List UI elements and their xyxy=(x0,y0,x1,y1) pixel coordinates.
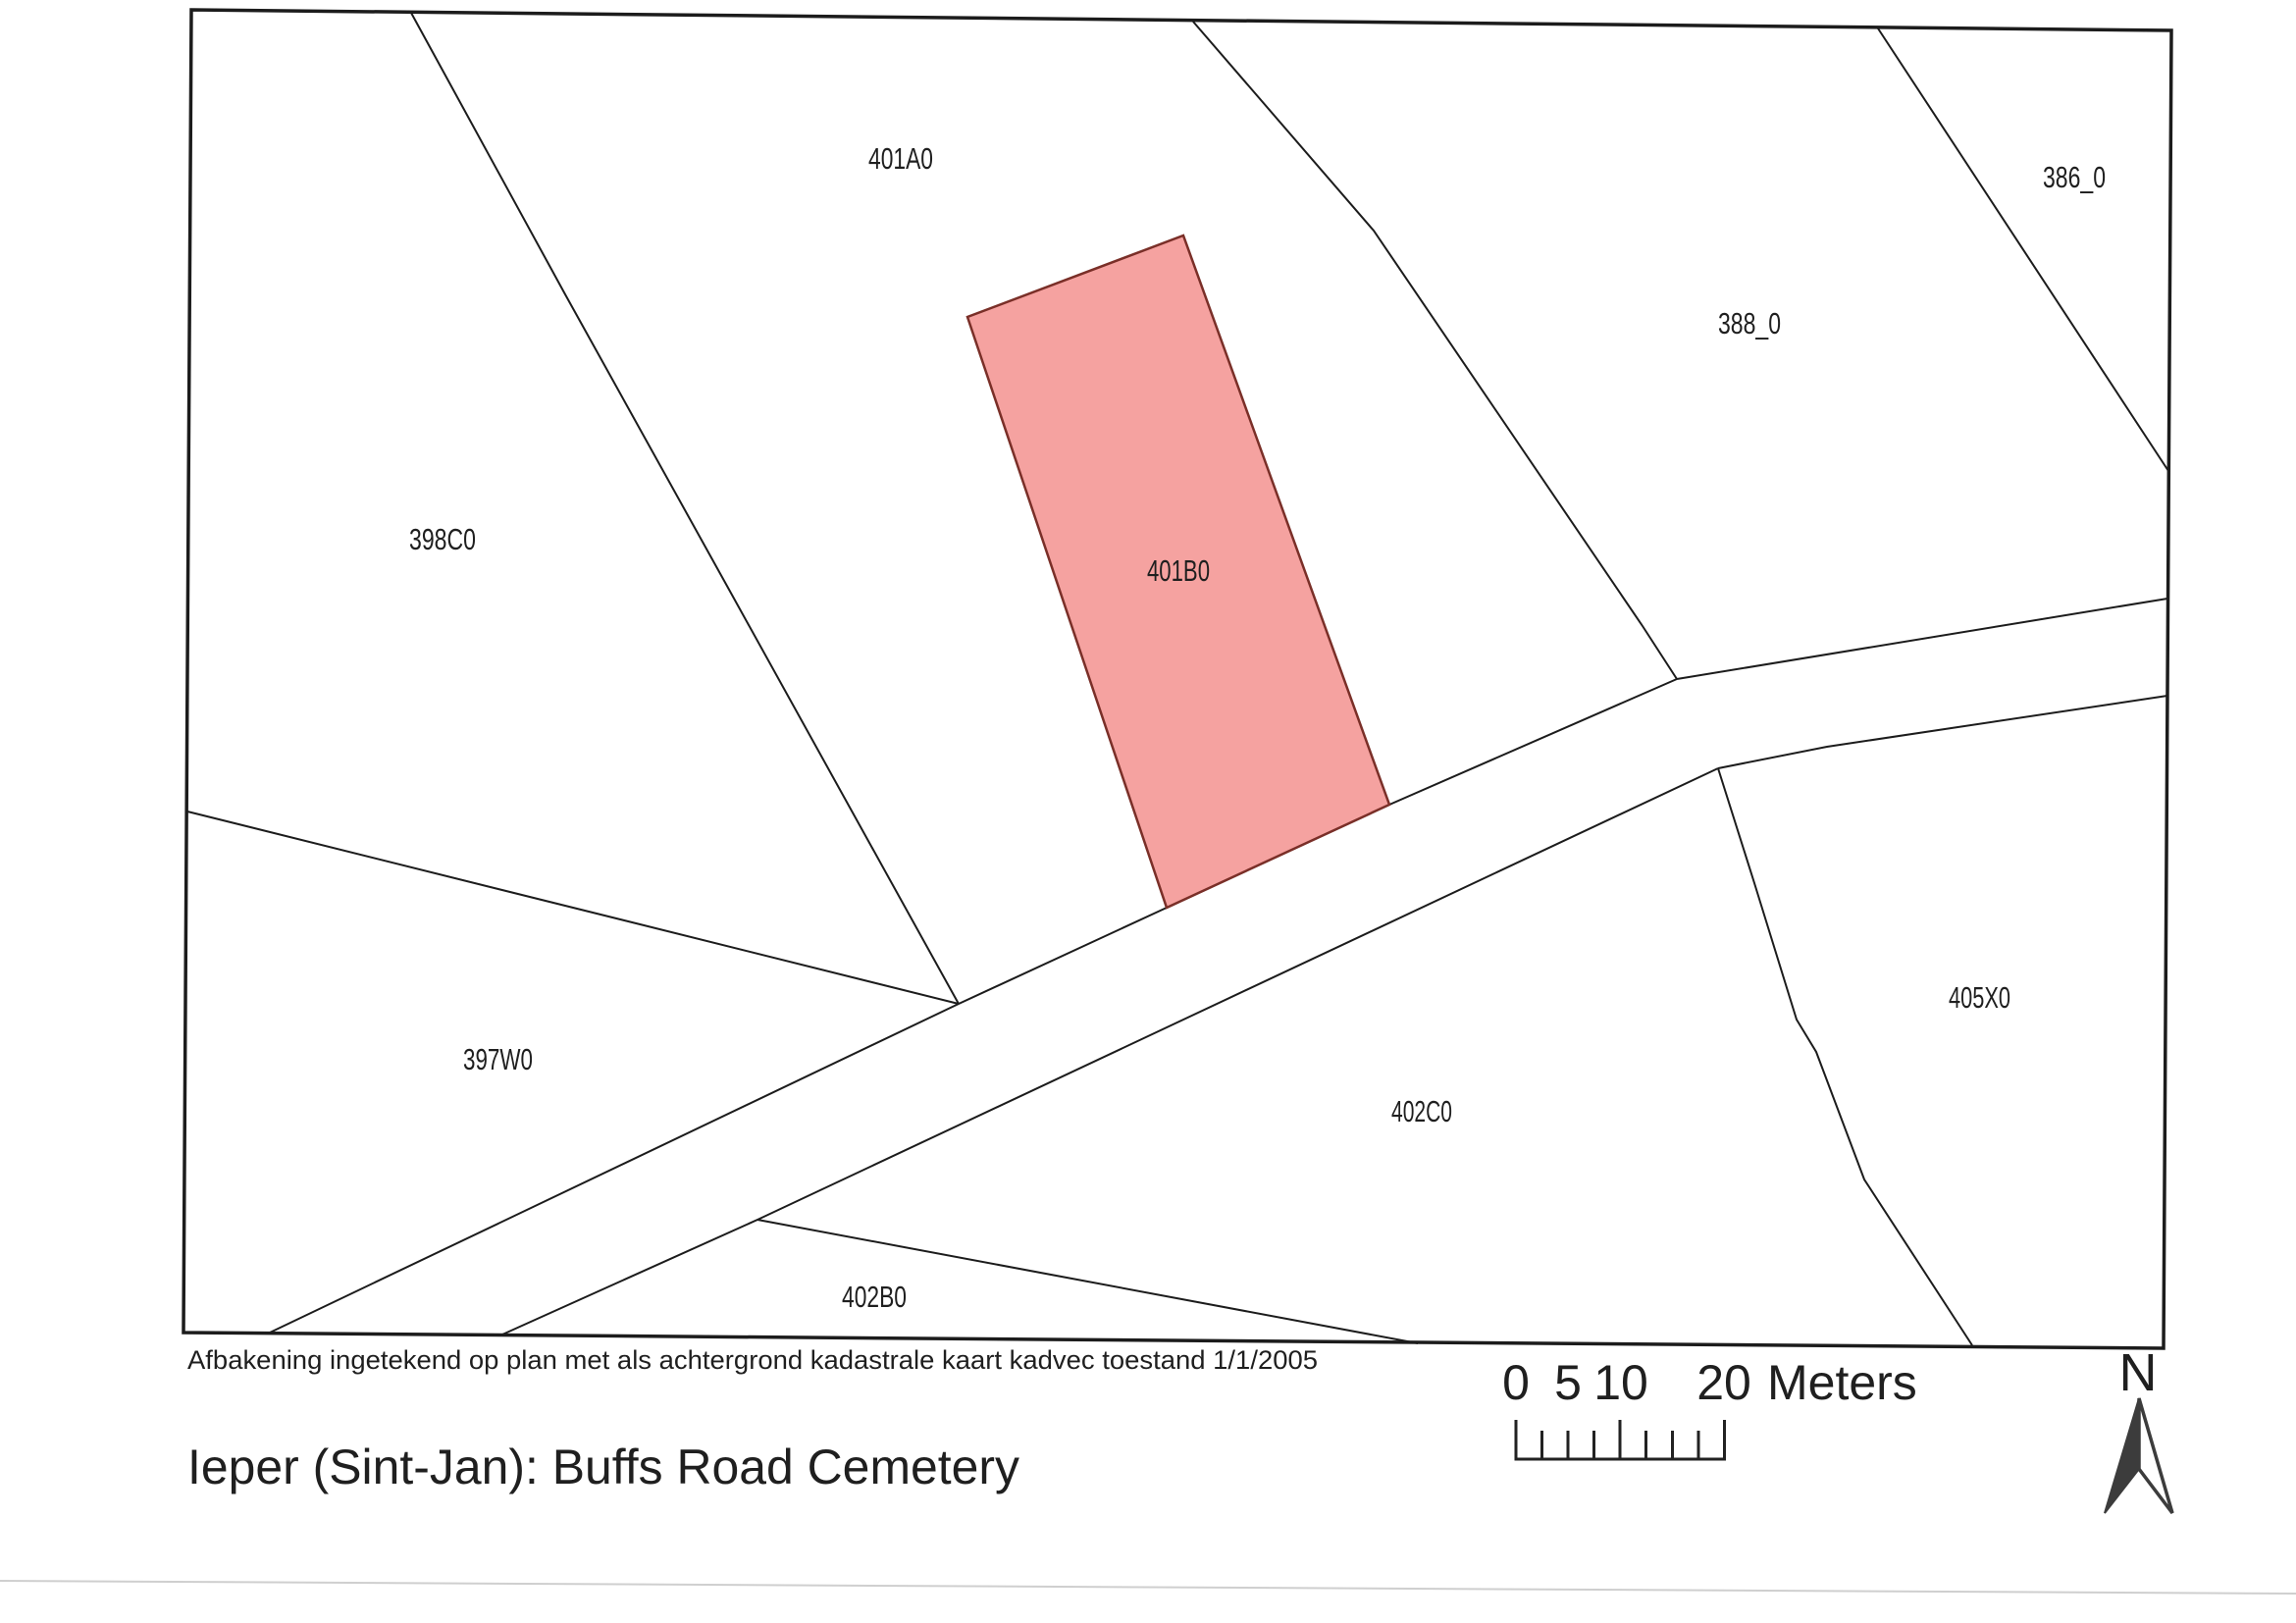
svg-text:405X0: 405X0 xyxy=(1949,980,2010,1015)
svg-text:388_0: 388_0 xyxy=(1718,306,1781,340)
svg-text:397W0: 397W0 xyxy=(463,1042,533,1076)
svg-text:386_0: 386_0 xyxy=(2043,160,2106,194)
svg-text:10: 10 xyxy=(1593,1355,1648,1410)
svg-text:N: N xyxy=(2119,1343,2158,1402)
svg-text:402B0: 402B0 xyxy=(842,1280,907,1314)
svg-text:20: 20 xyxy=(1696,1355,1751,1410)
svg-text:Meters: Meters xyxy=(1767,1355,1917,1410)
svg-text:398C0: 398C0 xyxy=(409,522,476,556)
svg-text:401B0: 401B0 xyxy=(1147,553,1210,588)
svg-text:Afbakening ingetekend op plan: Afbakening ingetekend op plan met als ac… xyxy=(187,1345,1318,1375)
svg-text:401A0: 401A0 xyxy=(868,141,933,176)
svg-text:402C0: 402C0 xyxy=(1391,1094,1452,1128)
svg-text:Ieper (Sint-Jan): Buffs Road C: Ieper (Sint-Jan): Buffs Road Cemetery xyxy=(187,1440,1019,1494)
svg-text:0: 0 xyxy=(1502,1355,1530,1410)
svg-text:5: 5 xyxy=(1554,1355,1582,1410)
